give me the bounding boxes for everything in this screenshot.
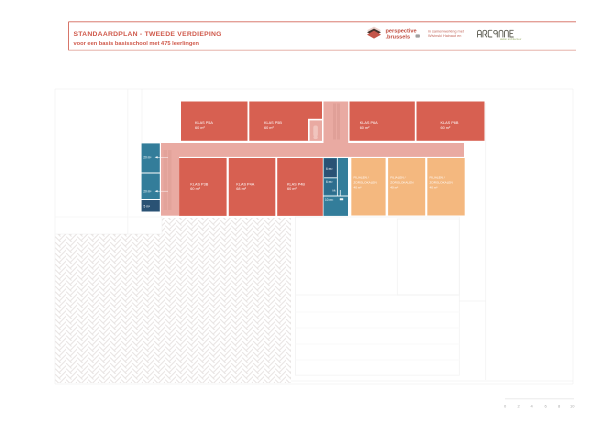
svg-text:68 m²: 68 m² bbox=[236, 187, 246, 191]
svg-text:6 m²: 6 m² bbox=[326, 180, 332, 184]
svg-text:8: 8 bbox=[558, 404, 561, 409]
svg-text:ZORGLOKALEN: ZORGLOKALEN bbox=[354, 181, 377, 185]
svg-text:FILIALEN /: FILIALEN / bbox=[430, 176, 445, 180]
svg-text:60 m²: 60 m² bbox=[287, 187, 297, 191]
svg-text:6: 6 bbox=[545, 404, 548, 409]
svg-text:5 m²: 5 m² bbox=[144, 205, 150, 209]
svg-text:0: 0 bbox=[504, 404, 507, 409]
svg-text:60 m²: 60 m² bbox=[264, 126, 274, 130]
svg-text:4: 4 bbox=[531, 404, 534, 409]
svg-text:40 m²: 40 m² bbox=[354, 185, 362, 189]
svg-text:ZORGLOKALEN: ZORGLOKALEN bbox=[430, 181, 453, 185]
svg-text:40 m²: 40 m² bbox=[430, 185, 438, 189]
svg-text:KLAS P5A: KLAS P5A bbox=[195, 121, 213, 125]
svg-text:Wivinski Hainaut en: Wivinski Hainaut en bbox=[428, 34, 461, 38]
svg-text:atelier architectuur: atelier architectuur bbox=[500, 37, 521, 41]
svg-text:60 m²: 60 m² bbox=[190, 187, 200, 191]
svg-text:KLAS P3B: KLAS P3B bbox=[190, 183, 208, 187]
svg-text:KLAS P6B: KLAS P6B bbox=[441, 121, 459, 125]
svg-text:60 m²: 60 m² bbox=[360, 126, 370, 130]
svg-text:20 m²: 20 m² bbox=[143, 189, 151, 193]
svg-text:6 m²: 6 m² bbox=[326, 167, 332, 171]
svg-text:20 m²: 20 m² bbox=[143, 155, 151, 159]
svg-text:lift: lift bbox=[333, 189, 336, 193]
svg-text:10 m²: 10 m² bbox=[325, 198, 333, 202]
svg-text:60 m²: 60 m² bbox=[441, 126, 451, 130]
svg-text:10: 10 bbox=[570, 404, 575, 409]
svg-text:40 m²: 40 m² bbox=[390, 185, 398, 189]
svg-text:2: 2 bbox=[518, 404, 521, 409]
svg-text:ZORGLOKALEN: ZORGLOKALEN bbox=[390, 181, 413, 185]
svg-text:60 m²: 60 m² bbox=[195, 126, 205, 130]
svg-text:KLAS P4B: KLAS P4B bbox=[287, 183, 305, 187]
svg-text:STANDAARDPLAN - TWEEDE VERDIEP: STANDAARDPLAN - TWEEDE VERDIEPING bbox=[74, 31, 222, 38]
svg-text:FILIALEN /: FILIALEN / bbox=[390, 176, 405, 180]
svg-text:in samenwerking met: in samenwerking met bbox=[428, 29, 465, 33]
svg-text:KLAS P6A: KLAS P6A bbox=[360, 121, 378, 125]
svg-text:.brussels: .brussels bbox=[386, 34, 411, 40]
svg-text:voor een basis basisschool met: voor een basis basisschool met 475 leerl… bbox=[74, 41, 200, 47]
svg-text:FILIALEN /: FILIALEN / bbox=[354, 176, 369, 180]
svg-text:KLAS P5B: KLAS P5B bbox=[264, 121, 282, 125]
svg-text:KLAS P4A: KLAS P4A bbox=[236, 183, 254, 187]
